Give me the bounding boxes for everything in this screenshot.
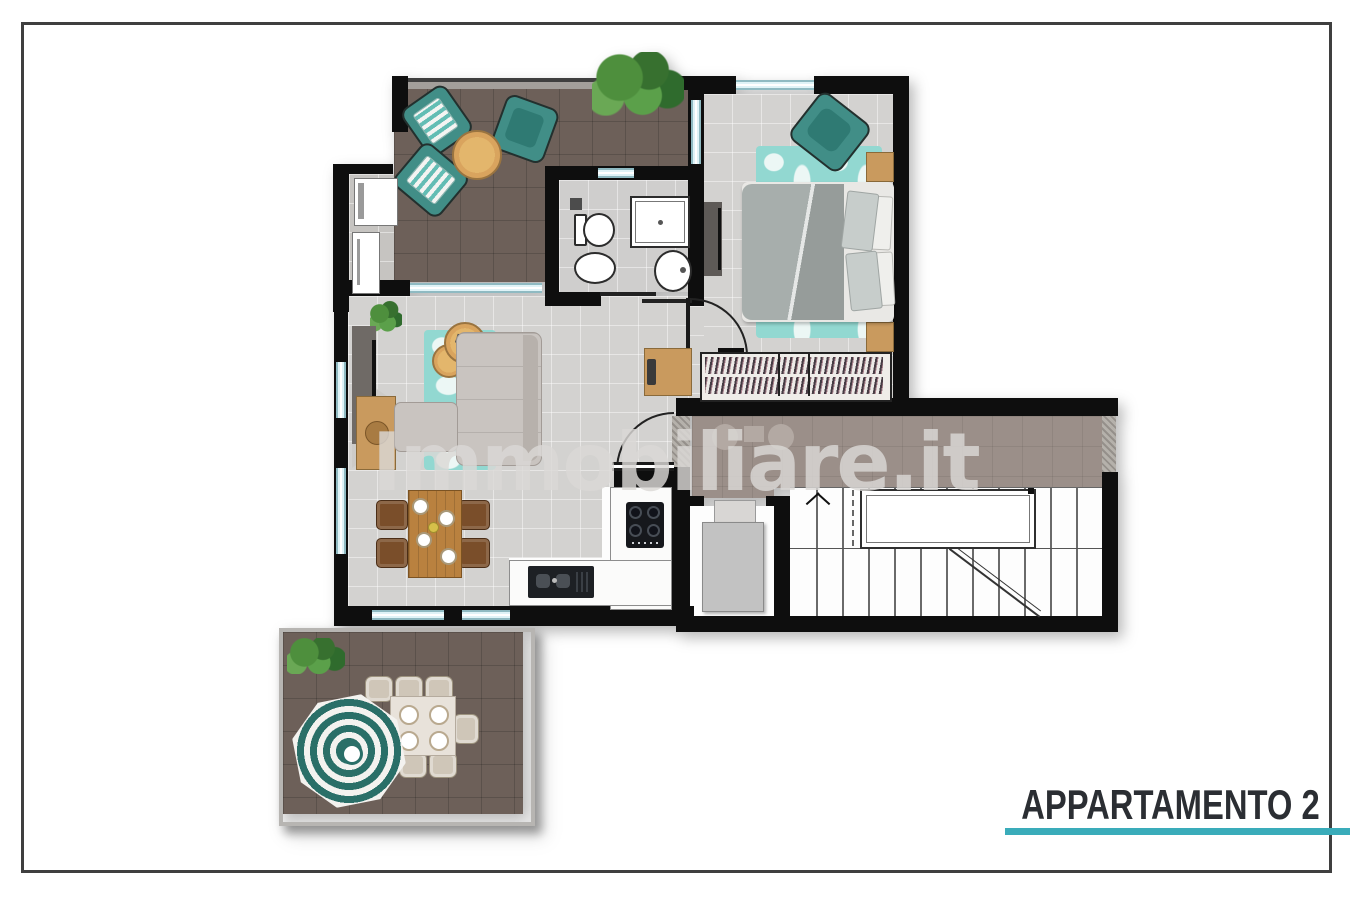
title-underline (1005, 828, 1350, 835)
apartment-title: APPARTAMENTO 2 (1021, 781, 1320, 829)
floorplan-page: Immobiliare.it APPARTAMENTO 2 (0, 0, 1350, 900)
immobiliare-watermark: Immobiliare.it (372, 416, 1072, 509)
